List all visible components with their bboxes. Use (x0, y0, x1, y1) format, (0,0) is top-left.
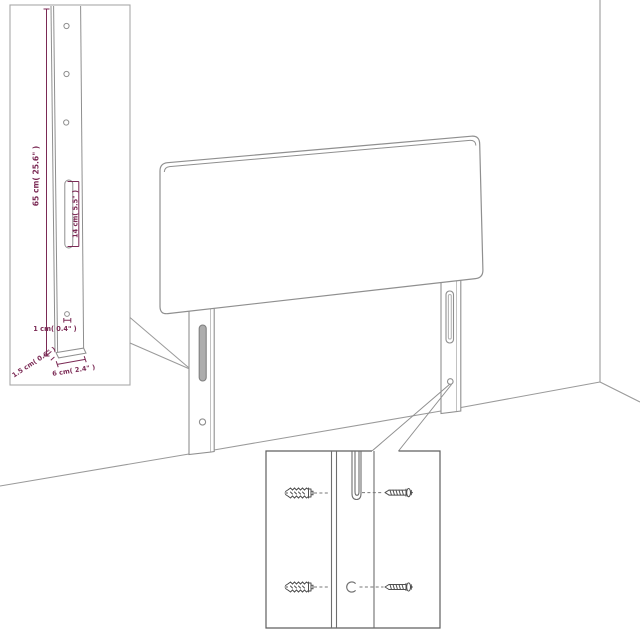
left-leg-screw-hole (199, 419, 205, 425)
left-leg-slot (199, 325, 206, 381)
headboard-panel (160, 136, 483, 314)
inset-screw-hole-2 (64, 71, 69, 76)
floor-line-right (600, 382, 640, 402)
leg-dimension-inset: 65 cm( 25.6" ) 14 cm( 5.5" ) 1 cm( 0.4" … (10, 5, 130, 385)
inset-frame (266, 451, 440, 628)
hole-diameter-label: 1 cm( 0.4" ) (33, 325, 76, 333)
inset-screw-hole-3 (64, 120, 69, 125)
inset-screw-hole-1 (64, 23, 69, 28)
right-leg (441, 272, 461, 414)
leg-inset-callout-lines (130, 318, 189, 369)
slot-length-label: 14 cm( 5.5" ) (72, 190, 80, 238)
right-leg-screw-hole (448, 379, 454, 385)
headboard-diagram: 65 cm( 25.6" ) 14 cm( 5.5" ) 1 cm( 0.4" … (0, 0, 640, 640)
diagram-canvas: 65 cm( 25.6" ) 14 cm( 5.5" ) 1 cm( 0.4" … (0, 0, 640, 640)
inset-bottom-hole (65, 312, 70, 317)
mounting-inset-callout-lines (372, 384, 452, 451)
mounting-detail-inset (266, 451, 440, 628)
leg-height-label: 65 cm( 25.6" ) (32, 146, 41, 207)
left-leg (189, 300, 214, 455)
